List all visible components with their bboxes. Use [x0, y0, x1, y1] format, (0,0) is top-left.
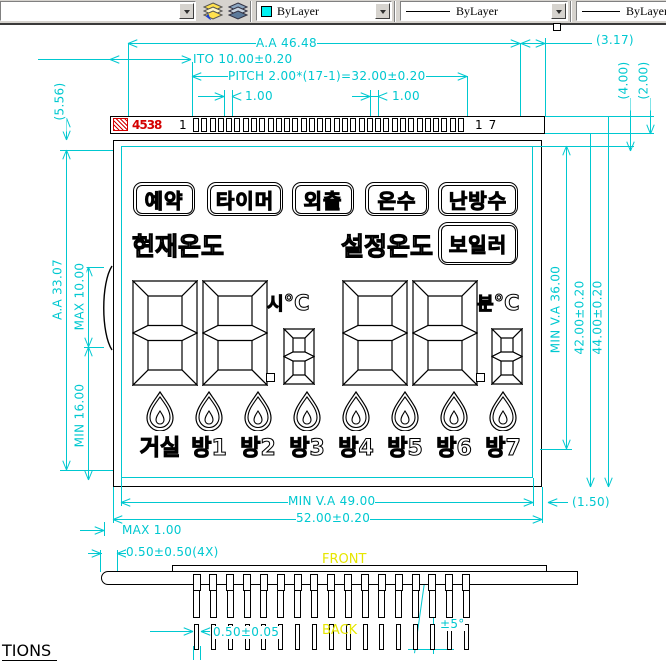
- dim-aa-height: A.A 33.07: [52, 250, 65, 330]
- drawing-element: [192, 391, 226, 431]
- large-digit-2: [202, 280, 268, 390]
- arw: [182, 55, 191, 64]
- flame-icon: [437, 391, 471, 435]
- back-view-label: BACK: [322, 623, 357, 638]
- dim-total-height-42: 42.00±0.20: [574, 273, 587, 363]
- mode-button-label: 외출: [304, 185, 343, 214]
- linetype-control-value: ByLayer: [456, 4, 498, 19]
- minute-unit-label: 분°C: [477, 290, 519, 316]
- make-object-layer-button[interactable]: [226, 0, 250, 22]
- hour-unit-label: 시°C: [267, 290, 309, 316]
- sheet-title-text: TIONS: [2, 641, 57, 661]
- pin-12: [379, 624, 384, 650]
- front-view-label: FRONT: [322, 552, 366, 567]
- mode-button-label: 난방수: [449, 185, 507, 214]
- mode-button-5: 난방수: [438, 182, 518, 216]
- drawing-element: [413, 326, 477, 341]
- set-temp-label: 설정온도: [341, 227, 433, 263]
- color-control-dropdown[interactable]: ByLayer: [256, 1, 392, 21]
- ito-pad: [259, 118, 265, 132]
- arw: [117, 549, 126, 558]
- toolbar-bottom-edge: [0, 23, 666, 25]
- dim-pin-offset: 0.50±0.50(4X): [126, 546, 219, 559]
- drawing-element: [343, 326, 407, 341]
- drawing-element: [412, 280, 478, 386]
- arw: [536, 39, 545, 48]
- hl: [128, 43, 520, 44]
- arw: [524, 498, 533, 507]
- ito-pad: [243, 118, 249, 132]
- btn-in: 온수: [368, 185, 427, 214]
- ito-pad: [325, 118, 331, 132]
- drawing-element: [202, 280, 268, 386]
- ito-pad: [350, 118, 356, 132]
- vl: [545, 38, 546, 116]
- flame-icon: [290, 391, 324, 435]
- ito-pad: [458, 118, 464, 132]
- drawing-element: [241, 391, 275, 431]
- k: 분: [477, 294, 494, 315]
- current-temp-label: 현재온도: [132, 227, 224, 263]
- linetype-control-dropdown[interactable]: ByLayer: [400, 1, 568, 21]
- pin-3: [227, 591, 234, 618]
- c: °C: [494, 291, 520, 315]
- vl: [608, 116, 609, 487]
- ito-pad: [383, 118, 389, 132]
- hl: [520, 43, 592, 44]
- arw: [84, 347, 93, 356]
- vl: [66, 150, 67, 470]
- arw: [533, 515, 542, 524]
- drawing-element: [388, 391, 422, 431]
- arw: [84, 471, 93, 480]
- ito-pad: [367, 118, 373, 132]
- pin-14: [412, 574, 420, 591]
- mode-button-label: 예약: [145, 185, 184, 214]
- pin-number-last: 17: [475, 118, 502, 132]
- room-label-5: 방4: [332, 430, 381, 462]
- pin-9: [328, 591, 335, 618]
- pin-1: [194, 624, 199, 650]
- pin-11: [363, 624, 368, 650]
- small-digit-1: [283, 328, 315, 389]
- tri: [184, 10, 190, 17]
- hl: [545, 133, 654, 134]
- dim-gap-150: (1.50): [572, 496, 610, 509]
- ito-pad: [392, 118, 398, 132]
- pin-8: [310, 574, 318, 591]
- drawing-element: [203, 326, 267, 341]
- ito-pad: [276, 118, 282, 132]
- vl: [192, 62, 193, 116]
- vl: [520, 43, 521, 116]
- ito-pad: [234, 118, 240, 132]
- pin-13: [395, 591, 402, 618]
- pin-1: [193, 574, 201, 591]
- pin-5: [260, 591, 267, 618]
- arw: [548, 498, 557, 507]
- btn-in: 난방수: [441, 185, 516, 214]
- toolbar-separator: [250, 1, 252, 22]
- vl: [128, 43, 129, 116]
- layer-properties-button[interactable]: [201, 0, 225, 22]
- dim-gap-556: (5.56): [54, 72, 67, 132]
- arw: [184, 627, 193, 636]
- drawing-element: [290, 391, 324, 431]
- vl: [88, 267, 89, 347]
- room-label-3: 방2: [234, 430, 283, 462]
- pin-17: [463, 591, 470, 618]
- linetype-glyph: [406, 11, 450, 12]
- arw: [215, 92, 224, 101]
- ito-pad: [268, 118, 274, 132]
- drawing-element: [104, 266, 112, 350]
- large-digit-4: [412, 280, 478, 390]
- pin-9: [327, 574, 335, 591]
- dim-pad-width-a: 1.00: [245, 90, 273, 103]
- drawing-element: [437, 391, 471, 431]
- dim-pitch: PITCH 2.00*(17-1)=32.00±0.20: [228, 70, 426, 83]
- arw: [232, 92, 241, 101]
- pin-7: [295, 624, 300, 650]
- pin-6: [277, 574, 285, 591]
- pin-7: [294, 574, 302, 591]
- color-swatch: [261, 6, 272, 17]
- ito-pad: [210, 118, 216, 132]
- decimal-point-left: [266, 373, 275, 382]
- dim-min-va-height: MIN V.A 36.00: [550, 260, 563, 360]
- arw: [586, 478, 595, 487]
- room-label-1: 거실: [136, 430, 185, 462]
- toolbar-separator: [570, 1, 572, 22]
- selection-grip[interactable]: [553, 23, 561, 31]
- pin-15: [428, 574, 436, 591]
- flame-icon: [192, 391, 226, 435]
- decimal-point-right: [476, 373, 485, 382]
- pin-5: [260, 574, 268, 591]
- ito-pad: [301, 118, 307, 132]
- chevron-down-icon[interactable]: [375, 3, 390, 19]
- ito-pad: [284, 118, 290, 132]
- lineweight-glyph: [582, 11, 620, 12]
- vl: [542, 487, 543, 523]
- vl: [104, 522, 105, 536]
- toolbar-separator: [394, 1, 396, 22]
- dim-total-height-44: 44.00±0.20: [592, 273, 605, 363]
- arw: [201, 627, 210, 636]
- boiler-indicator: 보일러: [438, 222, 518, 265]
- tri: [556, 10, 562, 17]
- btn-in: 외출: [295, 185, 352, 214]
- mode-button-1: 예약: [133, 182, 195, 216]
- arw: [192, 72, 201, 81]
- arw: [458, 72, 467, 81]
- ito-pad: [218, 118, 224, 132]
- ito-pad: [359, 118, 365, 132]
- large-digit-3: [342, 280, 408, 390]
- drawing-element: [486, 391, 520, 431]
- dim-gap-317: (3.17): [596, 34, 634, 47]
- flame-icon: [388, 391, 422, 435]
- arw: [626, 142, 635, 151]
- alignment-mark: [113, 118, 128, 131]
- pin-number-first: 1: [179, 118, 187, 132]
- arw: [361, 92, 370, 101]
- pin-13: [395, 574, 403, 591]
- pin-1: [193, 591, 200, 618]
- drawing-element: [342, 280, 408, 386]
- arw: [92, 549, 101, 558]
- ito-pad: [292, 118, 298, 132]
- mode-button-2: 타이머: [207, 182, 283, 216]
- cad-application-window: ByLayer ByLayer ByLayer 4538 1 17 예약타이머외…: [0, 0, 666, 666]
- arw: [562, 440, 571, 449]
- side-view-glass-bottom: [101, 571, 578, 585]
- ito-pad: [441, 118, 447, 132]
- small-digit-2: [491, 328, 523, 389]
- ito-pad-strip: 4538 1 17: [110, 116, 545, 134]
- flame-icon: [143, 391, 177, 435]
- dim-ito: ITO 10.00±0.20: [193, 53, 292, 66]
- pin-17: [462, 574, 470, 591]
- pin-2: [209, 574, 217, 591]
- room-label-2: 방1: [185, 430, 234, 462]
- pin-11: [361, 574, 369, 591]
- pin-14: [412, 591, 419, 618]
- arw: [113, 515, 122, 524]
- pin-4: [244, 591, 251, 618]
- arw: [62, 131, 71, 140]
- drawing-element: [133, 326, 197, 341]
- layers-yellow-icon: [203, 2, 223, 20]
- ito-pad: [408, 118, 414, 132]
- flame-icon: [241, 391, 275, 435]
- pin-2: [210, 591, 217, 618]
- btn-in: 타이머: [210, 185, 281, 214]
- ito-pad: [342, 118, 348, 132]
- arw: [511, 39, 520, 48]
- dim-pin-angle: ±5°: [440, 618, 465, 631]
- dim-max-bump: MAX 10.00: [74, 257, 87, 337]
- pin-16: [445, 574, 453, 591]
- boiler-label: 보일러: [449, 229, 507, 258]
- vl: [224, 90, 225, 116]
- pin-16: [446, 591, 453, 618]
- color-control-value: ByLayer: [277, 4, 319, 19]
- arw: [62, 150, 71, 159]
- ito-pad: [317, 118, 323, 132]
- drawing-element: [132, 280, 198, 386]
- ito-pad: [425, 118, 431, 132]
- vl: [467, 76, 468, 116]
- mode-button-label: 타이머: [216, 185, 274, 214]
- pin-6: [277, 591, 284, 618]
- k: 시: [267, 294, 284, 315]
- pin-15: [429, 591, 436, 618]
- ito-pad: [334, 118, 340, 132]
- ito-pad: [309, 118, 315, 132]
- ito-pad: [226, 118, 232, 132]
- dim-gap-400: (4.00): [618, 51, 631, 111]
- arw: [646, 125, 655, 134]
- tri: [380, 10, 386, 17]
- pin-13: [396, 624, 401, 650]
- dim-max-offset: MAX 1.00: [122, 524, 182, 537]
- mode-button-label: 온수: [378, 185, 417, 214]
- ito-pad: [400, 118, 406, 132]
- pin-3: [226, 574, 234, 591]
- pin-10: [344, 574, 352, 591]
- chevron-down-icon[interactable]: [179, 3, 194, 19]
- pin-15: [430, 624, 435, 650]
- mode-button-3: 외출: [292, 182, 354, 216]
- large-digit-1: [132, 280, 198, 390]
- hl: [540, 449, 572, 450]
- dim-total-width-52: 52.00±0.20: [296, 512, 370, 525]
- dim-min-va-width: MIN V.A 49.00: [288, 495, 375, 508]
- btn-in: 예약: [136, 185, 193, 214]
- dim-min-ledge: MIN 16.00: [74, 376, 87, 456]
- arw: [521, 39, 530, 48]
- flame-icon: [486, 391, 520, 435]
- flame-icon: [339, 391, 373, 435]
- arw: [562, 146, 571, 155]
- dim-gap-200: (2.00): [638, 51, 651, 111]
- ito-pad: [193, 118, 199, 132]
- room-label-6: 방5: [381, 430, 430, 462]
- ito-pad: [450, 118, 456, 132]
- arw: [128, 39, 137, 48]
- ito-pad: [201, 118, 207, 132]
- ito-pad: [417, 118, 423, 132]
- mode-button-4: 온수: [365, 182, 429, 216]
- ito-pad: [433, 118, 439, 132]
- ito-pad: [375, 118, 381, 132]
- room-label-8: 방7: [479, 430, 528, 462]
- arw: [95, 526, 104, 535]
- pin-12: [378, 591, 385, 618]
- vl: [370, 90, 371, 116]
- glass-side-bump: [99, 265, 113, 351]
- arw: [62, 461, 71, 470]
- arw: [378, 92, 387, 101]
- room-label-4: 방3: [283, 430, 332, 462]
- hl: [533, 146, 634, 147]
- drawing-element: [339, 391, 373, 431]
- drawing-element: [143, 391, 177, 431]
- drawing-element: [491, 328, 523, 385]
- room-label-7: 방6: [430, 430, 479, 462]
- pin-4: [243, 574, 251, 591]
- pin-8: [311, 591, 318, 618]
- pin-12: [378, 574, 386, 591]
- arw: [121, 498, 130, 507]
- layers-blue-icon: [228, 2, 248, 20]
- part-number: 4538: [132, 118, 161, 132]
- dim-aa-width: A.A 46.48: [256, 37, 317, 50]
- hl: [545, 116, 654, 117]
- ito-pad: [251, 118, 257, 132]
- properties-toolbar: ByLayer ByLayer ByLayer: [0, 0, 666, 23]
- lineweight-control-value: ByLayer: [626, 4, 666, 19]
- pin-11: [362, 591, 369, 618]
- vl: [566, 146, 567, 449]
- arw: [604, 478, 613, 487]
- drawing-element: [283, 328, 315, 385]
- lineweight-control-dropdown[interactable]: ByLayer: [576, 1, 666, 21]
- pin-7: [294, 591, 301, 618]
- vl: [200, 646, 201, 660]
- dim-pin-width: 0.50±0.05: [213, 626, 279, 639]
- btn-in: 보일러: [441, 225, 516, 263]
- c: °C: [284, 291, 310, 315]
- layer-control-dropdown[interactable]: [0, 1, 196, 21]
- arw: [110, 55, 119, 64]
- dim-pad-width-b: 1.00: [392, 90, 420, 103]
- pin-10: [345, 591, 352, 618]
- chevron-down-icon[interactable]: [551, 3, 566, 19]
- pin-8: [312, 624, 317, 650]
- pin-14: [413, 624, 418, 650]
- vl: [88, 347, 89, 480]
